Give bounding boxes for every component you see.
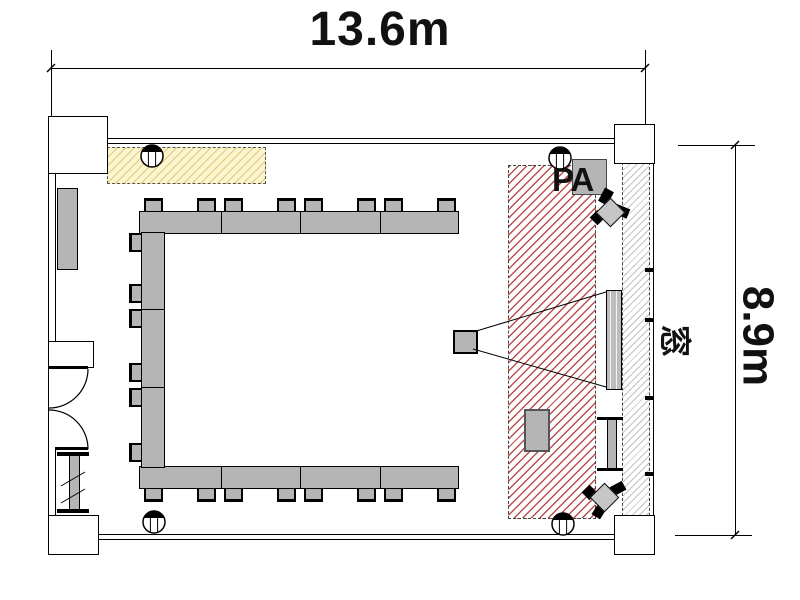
dimension-extension-top-right — [645, 50, 646, 124]
chair — [384, 489, 403, 502]
panel-left-stem — [69, 456, 80, 509]
wall-left-inner-upper — [55, 172, 56, 366]
wall-top-inner — [106, 143, 614, 144]
table-divider — [221, 212, 222, 233]
chair — [437, 489, 456, 502]
whiteboard-area — [107, 147, 266, 184]
side-table-stem — [607, 420, 617, 470]
speaker-icon — [590, 187, 636, 231]
wall-left-outer — [48, 116, 49, 553]
wall-right-outer — [653, 162, 654, 515]
chair — [144, 198, 163, 211]
chair — [129, 363, 141, 382]
chair — [224, 489, 243, 502]
chair — [197, 198, 216, 211]
table-column-left — [141, 232, 165, 468]
corner-pillar-top-right — [614, 124, 655, 164]
table-divider — [221, 467, 222, 488]
stage-area — [508, 165, 596, 519]
door-pier — [48, 341, 94, 368]
door-icon — [49, 369, 88, 408]
dimension-line-top — [51, 68, 645, 69]
door-icon — [49, 410, 88, 449]
table-divider — [142, 309, 164, 310]
cabinet — [57, 188, 78, 270]
dimension-extension-right-top — [678, 145, 755, 146]
chair — [197, 489, 216, 502]
door-jamb-top — [48, 366, 88, 369]
window-label: 窓 — [656, 322, 694, 360]
chair — [224, 198, 243, 211]
panel-left-bottom-bar — [57, 509, 89, 513]
wall-bottom-outer — [97, 539, 614, 540]
chair — [129, 233, 141, 252]
chair — [437, 198, 456, 211]
dimension-extension-right-bottom — [675, 535, 752, 536]
height-dimension-label: 8.9m — [734, 279, 782, 394]
chair — [277, 198, 296, 211]
chair — [384, 198, 403, 211]
table-divider — [380, 212, 381, 233]
floor-plan: 13.6m 8.9m 窓 PA — [0, 0, 800, 600]
line-art-overlay — [0, 0, 800, 600]
projection-screen — [606, 290, 622, 390]
ceiling-fixture-icon — [143, 511, 165, 533]
pa-label: PA — [552, 161, 593, 199]
speaker-icon — [582, 482, 628, 524]
wall-left-inner-lower — [55, 449, 56, 515]
chair — [129, 443, 141, 462]
chair — [304, 198, 323, 211]
dimension-extension-top-left — [51, 50, 52, 116]
chair — [129, 388, 141, 407]
projector-icon — [453, 330, 478, 354]
table-divider — [300, 212, 301, 233]
table-divider — [300, 467, 301, 488]
chair — [357, 198, 376, 211]
chair — [129, 309, 141, 328]
width-dimension-label: 13.6m — [240, 2, 520, 57]
side-table-bottom-bar — [597, 468, 623, 471]
corner-pillar-bottom-left — [48, 515, 99, 555]
door-jamb-bottom — [55, 447, 88, 450]
table-divider — [380, 467, 381, 488]
stage-table — [524, 409, 550, 452]
table-row-bottom — [139, 466, 459, 489]
chair — [277, 489, 296, 502]
corner-pillar-top-left — [48, 116, 108, 174]
chair — [129, 284, 141, 303]
wall-top-outer — [106, 138, 614, 139]
chair — [357, 489, 376, 502]
chair — [144, 489, 163, 502]
wall-bottom-inner — [97, 534, 614, 535]
table-row-top — [139, 211, 459, 234]
chair — [304, 489, 323, 502]
table-divider — [142, 387, 164, 388]
